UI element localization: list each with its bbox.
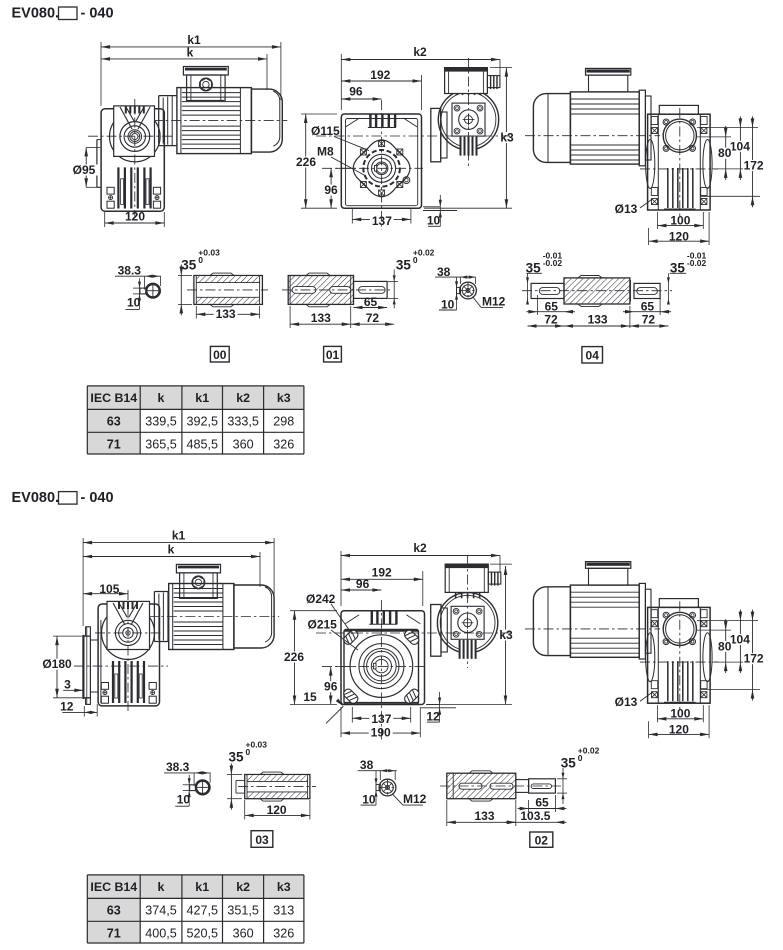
svg-text:100: 100 [670, 707, 690, 721]
svg-text:01: 01 [326, 348, 340, 362]
svg-text:72: 72 [642, 313, 656, 327]
svg-text:133: 133 [474, 809, 494, 823]
svg-text:k3: k3 [277, 880, 291, 894]
svg-text:03: 03 [255, 833, 269, 847]
svg-text:172: 172 [744, 652, 764, 666]
svg-text:0: 0 [246, 747, 251, 757]
svg-text:Ø13: Ø13 [615, 202, 638, 216]
svg-text:Ø180: Ø180 [42, 657, 72, 671]
svg-text:0: 0 [198, 255, 203, 265]
svg-text:3: 3 [64, 678, 71, 692]
svg-text:Ø95: Ø95 [73, 163, 96, 177]
svg-text:226: 226 [296, 155, 316, 169]
svg-text:15: 15 [303, 690, 317, 704]
svg-text:63: 63 [107, 414, 121, 428]
svg-text:96: 96 [356, 577, 370, 591]
svg-text:65: 65 [364, 295, 378, 309]
svg-text:485,5: 485,5 [186, 437, 218, 451]
svg-text:80: 80 [718, 146, 732, 160]
svg-text:02: 02 [535, 833, 549, 847]
svg-text:137: 137 [372, 214, 392, 228]
svg-text:k: k [158, 391, 165, 405]
svg-text:IEC B14: IEC B14 [90, 391, 137, 405]
svg-text:k3: k3 [499, 628, 513, 642]
svg-text:0: 0 [413, 255, 418, 265]
svg-text:103.5: 103.5 [520, 809, 550, 823]
svg-text:IEC B14: IEC B14 [90, 880, 137, 894]
svg-text:Ø215: Ø215 [308, 618, 338, 632]
svg-text:120: 120 [125, 210, 145, 224]
svg-text:365,5: 365,5 [145, 437, 177, 451]
svg-text:Ø13: Ø13 [615, 695, 638, 709]
svg-text:374,5: 374,5 [145, 903, 177, 917]
svg-text:392,5: 392,5 [186, 414, 218, 428]
svg-text:100: 100 [670, 213, 690, 227]
svg-text:104: 104 [730, 633, 750, 647]
svg-text:- 040: - 040 [81, 490, 114, 506]
svg-text:35: 35 [396, 258, 412, 273]
svg-text:65: 65 [535, 796, 549, 810]
svg-text:35: 35 [228, 750, 244, 765]
svg-text:313: 313 [273, 903, 294, 917]
svg-text:M8: M8 [317, 145, 334, 159]
svg-text:104: 104 [730, 139, 750, 153]
svg-text:k1: k1 [195, 880, 209, 894]
svg-text:-0.02: -0.02 [543, 258, 563, 268]
svg-text:133: 133 [311, 311, 331, 325]
svg-text:192: 192 [372, 565, 392, 579]
svg-text:10: 10 [427, 213, 441, 227]
svg-text:520,5: 520,5 [186, 926, 218, 940]
svg-text:120: 120 [669, 723, 689, 737]
svg-text:k: k [187, 45, 194, 59]
svg-text:96: 96 [324, 183, 338, 197]
svg-text:k: k [158, 880, 165, 894]
svg-text:EV080.: EV080. [12, 5, 60, 21]
svg-text:38: 38 [360, 758, 374, 772]
svg-text:38.3: 38.3 [118, 264, 142, 278]
svg-text:339,5: 339,5 [145, 414, 177, 428]
svg-text:k2: k2 [236, 880, 250, 894]
svg-text:k1: k1 [172, 529, 186, 543]
svg-text:71: 71 [107, 926, 121, 940]
svg-text:71: 71 [107, 437, 121, 451]
svg-text:72: 72 [366, 311, 380, 325]
svg-text:226: 226 [284, 650, 304, 664]
svg-text:10: 10 [362, 793, 376, 807]
svg-text:38.3: 38.3 [166, 760, 190, 774]
svg-text:65: 65 [641, 299, 655, 313]
svg-text:400,5: 400,5 [145, 926, 177, 940]
svg-text:120: 120 [669, 230, 689, 244]
svg-text:360: 360 [233, 437, 254, 451]
svg-text:k1: k1 [195, 391, 209, 405]
svg-text:80: 80 [718, 639, 732, 653]
svg-text:190: 190 [371, 725, 391, 739]
svg-text:k3: k3 [500, 131, 514, 145]
svg-text:0: 0 [578, 753, 583, 763]
svg-text:192: 192 [370, 68, 390, 82]
svg-text:427,5: 427,5 [186, 903, 218, 917]
svg-text:k2: k2 [236, 391, 250, 405]
svg-text:63: 63 [107, 903, 121, 917]
svg-text:04: 04 [586, 348, 600, 362]
svg-text:133: 133 [588, 313, 608, 327]
svg-text:Ø242: Ø242 [306, 592, 336, 606]
svg-text:EV080.: EV080. [12, 490, 60, 506]
svg-text:M12: M12 [482, 295, 506, 309]
svg-text:105: 105 [99, 582, 119, 596]
svg-text:- 040: - 040 [81, 5, 114, 21]
svg-text:10: 10 [177, 792, 191, 806]
svg-text:k2: k2 [413, 541, 427, 555]
svg-text:72: 72 [544, 313, 558, 327]
svg-text:12: 12 [60, 700, 74, 714]
svg-text:35: 35 [561, 756, 577, 771]
svg-text:k2: k2 [413, 45, 427, 59]
svg-text:326: 326 [273, 437, 294, 451]
svg-text:00: 00 [213, 348, 227, 362]
svg-text:351,5: 351,5 [227, 903, 259, 917]
svg-text:12: 12 [426, 709, 440, 723]
svg-text:96: 96 [349, 84, 363, 98]
svg-text:M12: M12 [403, 792, 427, 806]
svg-text:65: 65 [545, 299, 559, 313]
svg-text:133: 133 [216, 307, 236, 321]
svg-text:120: 120 [267, 803, 287, 817]
svg-text:k3: k3 [277, 391, 291, 405]
svg-text:-0.02: -0.02 [687, 258, 707, 268]
svg-text:k: k [168, 543, 175, 557]
svg-text:172: 172 [744, 159, 764, 173]
svg-text:96: 96 [324, 680, 338, 694]
svg-text:360: 360 [233, 926, 254, 940]
svg-text:326: 326 [273, 926, 294, 940]
svg-text:298: 298 [273, 414, 294, 428]
svg-text:333,5: 333,5 [227, 414, 259, 428]
svg-text:10: 10 [441, 297, 455, 311]
svg-text:10: 10 [127, 296, 141, 310]
svg-text:35: 35 [181, 258, 197, 273]
